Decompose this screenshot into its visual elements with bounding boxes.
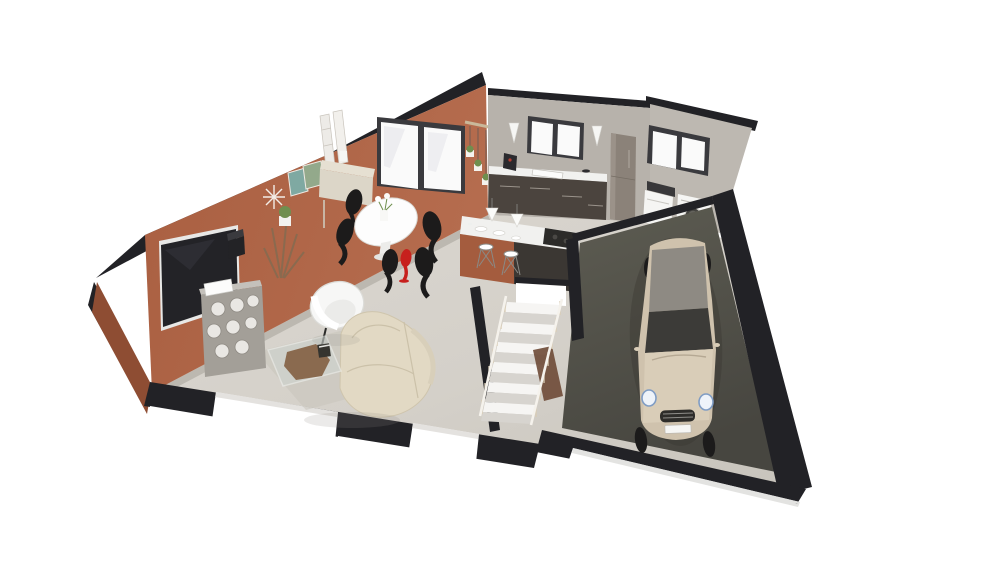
coffee-machine xyxy=(503,153,517,171)
car-mirror xyxy=(714,343,720,347)
honeycomb-shelf xyxy=(199,279,266,377)
french-doors xyxy=(377,117,465,194)
armchair-shadow xyxy=(312,334,360,346)
floorplan-render xyxy=(0,0,1000,563)
floorplan-page xyxy=(0,0,1000,563)
speaker xyxy=(227,229,245,259)
console-vase xyxy=(340,151,347,161)
plant-leaves xyxy=(279,206,291,218)
sofa-shadow xyxy=(304,412,400,428)
car-mirror xyxy=(634,347,640,351)
counter-item xyxy=(582,169,590,172)
car-grille xyxy=(660,409,695,422)
stair-landing-wall xyxy=(516,283,566,306)
car-roof xyxy=(649,246,708,312)
car-license-plate xyxy=(665,425,691,434)
car-headlight xyxy=(642,390,656,406)
car-headlight xyxy=(699,394,713,410)
kitchen-window xyxy=(527,116,584,160)
car-windshield xyxy=(645,308,713,353)
fridge xyxy=(610,133,636,223)
